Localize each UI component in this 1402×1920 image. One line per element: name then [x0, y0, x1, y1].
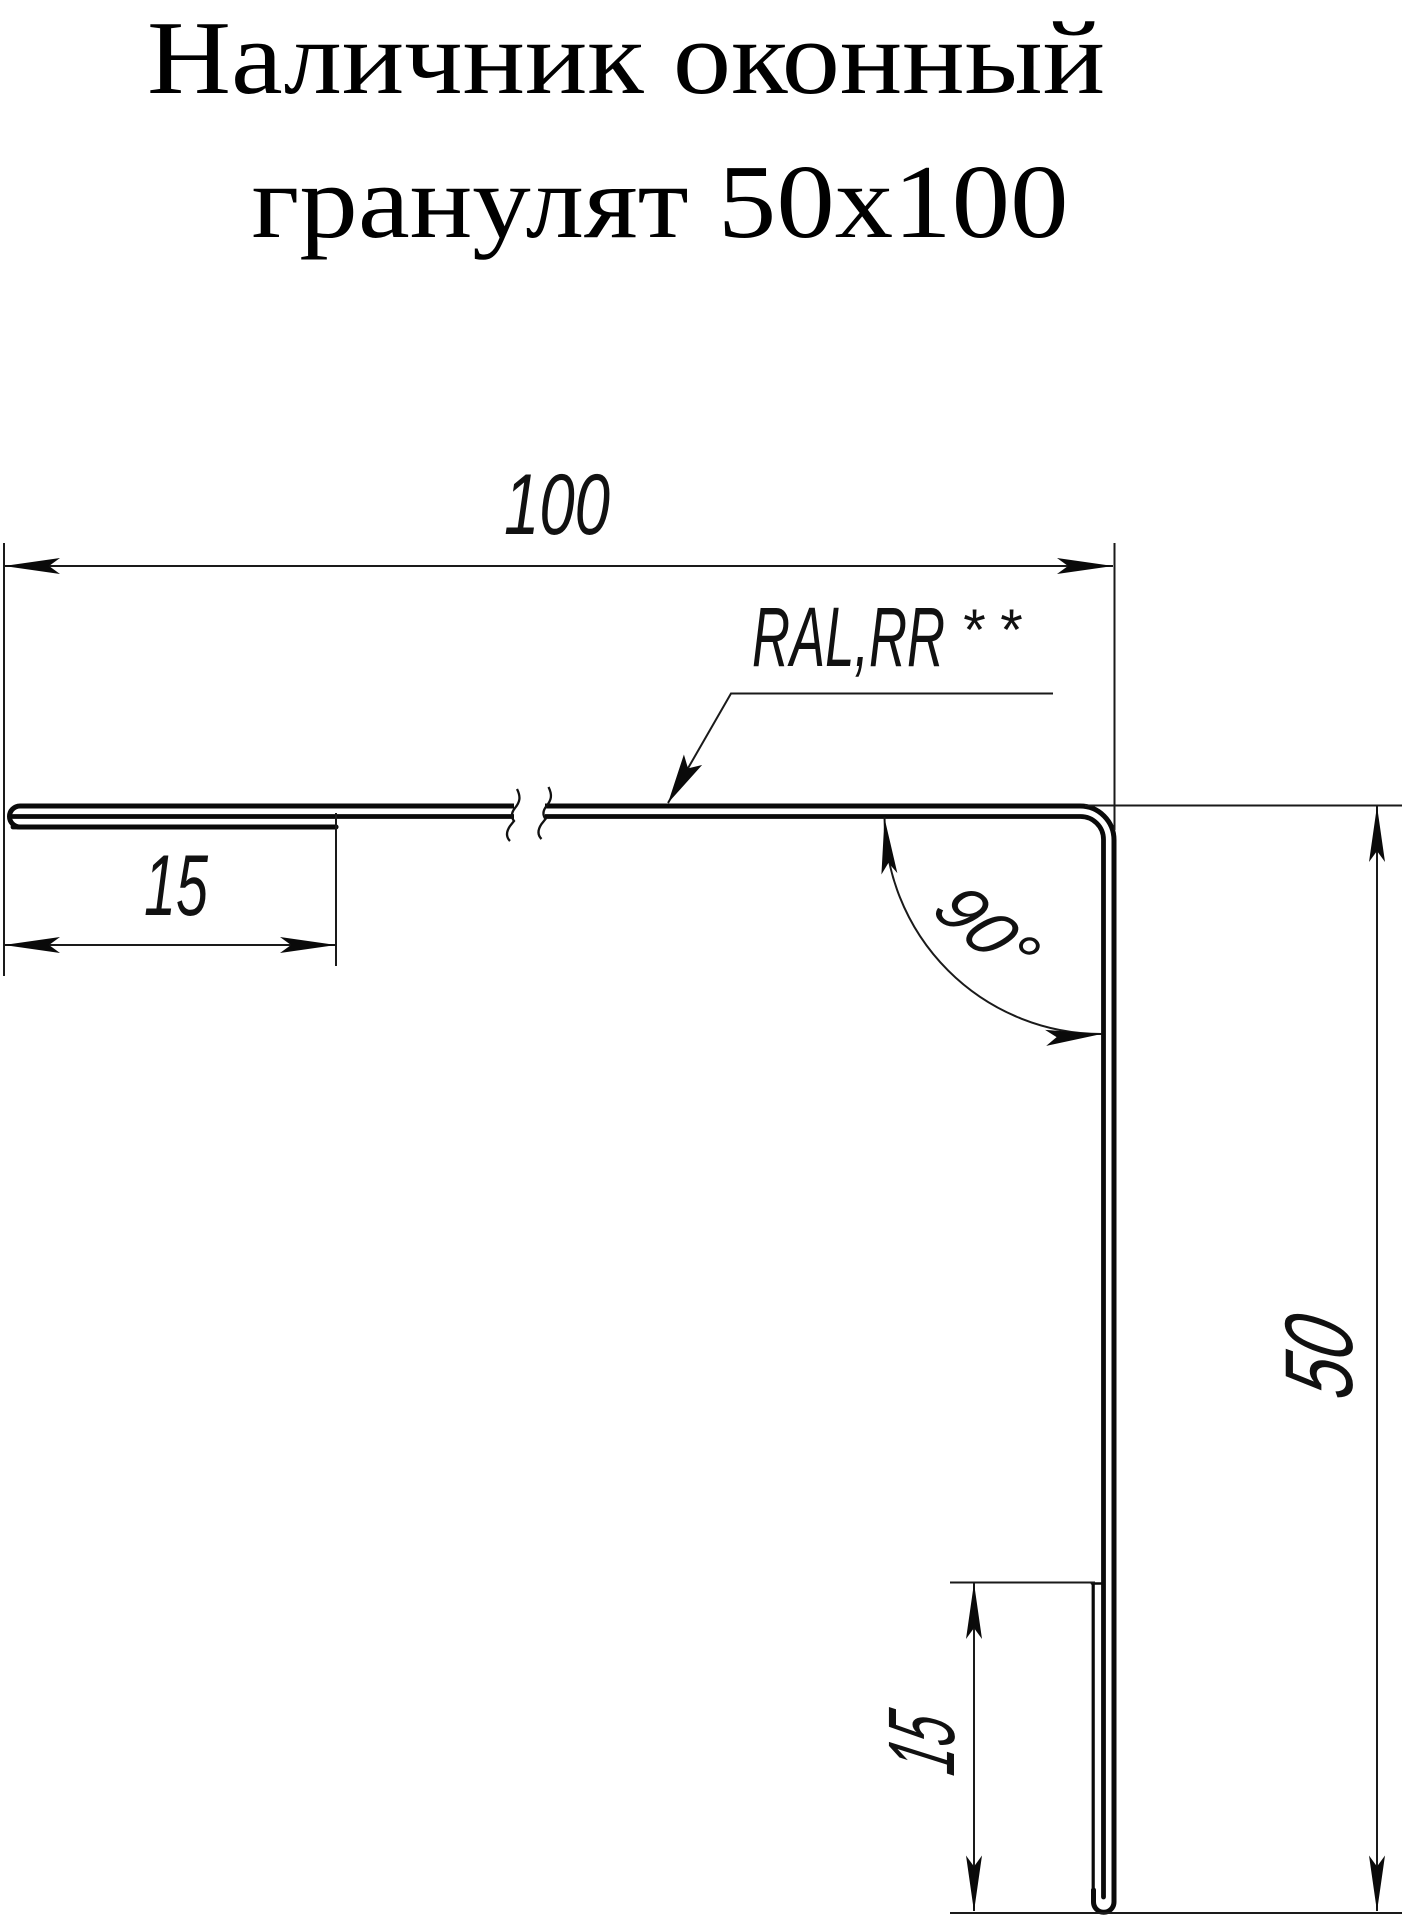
- svg-text:15: 15: [144, 838, 209, 934]
- svg-text:*: *: [961, 598, 986, 663]
- svg-text:RAL,RR: RAL,RR: [752, 590, 945, 684]
- svg-text:*: *: [998, 598, 1023, 663]
- svg-text:гранулят 50х100: гранулят 50х100: [252, 143, 1069, 260]
- svg-text:Наличник оконный: Наличник оконный: [147, 0, 1105, 116]
- svg-text:100: 100: [504, 457, 610, 553]
